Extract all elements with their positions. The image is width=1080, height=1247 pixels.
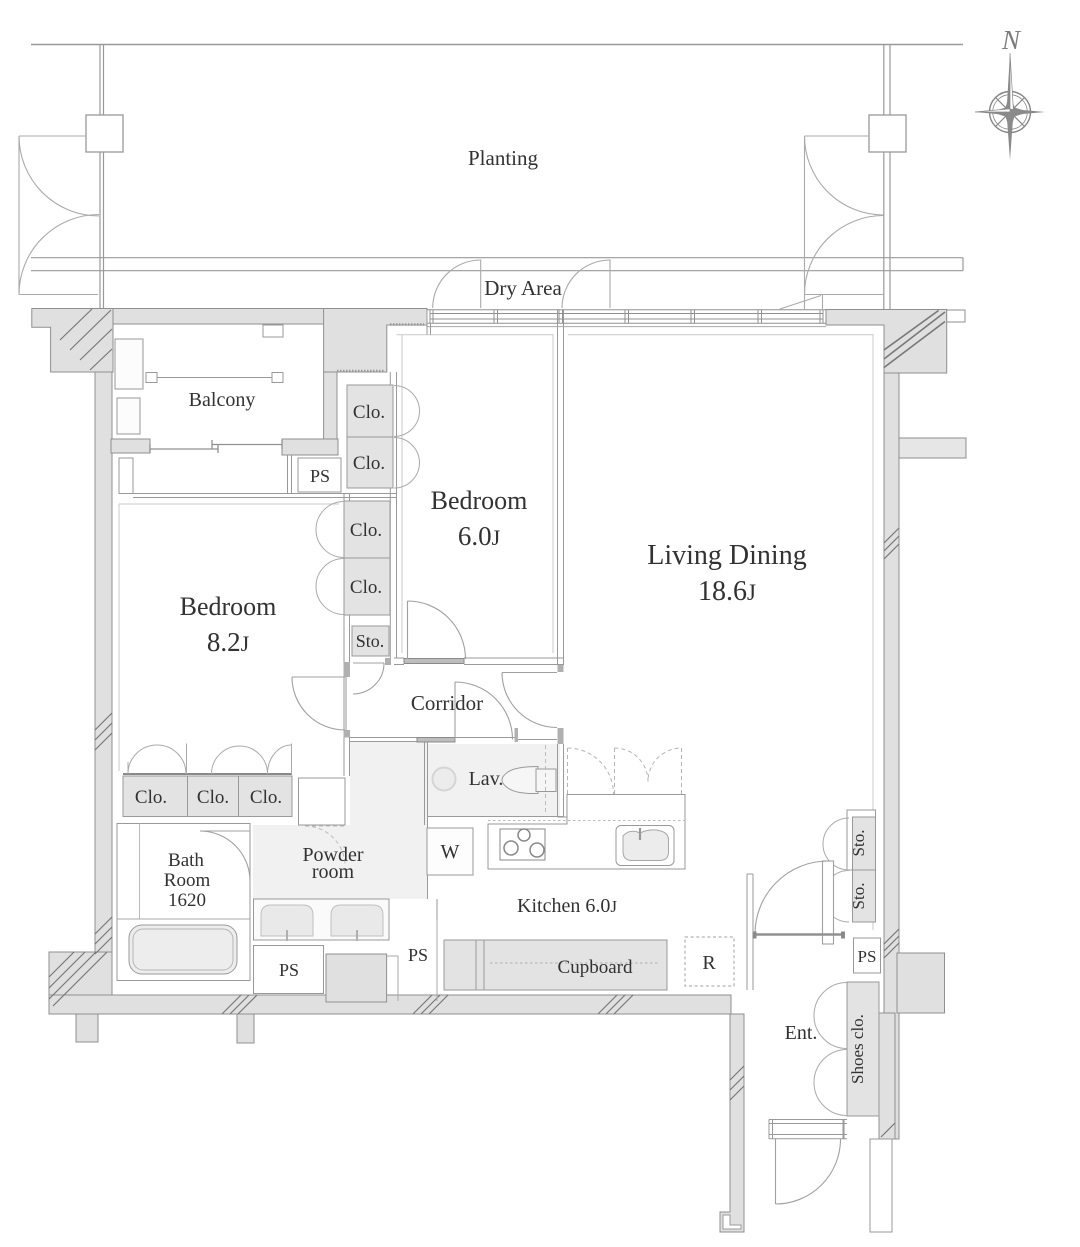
svg-text:6.0J: 6.0J [458,521,501,551]
svg-text:Balcony: Balcony [189,389,256,411]
svg-text:Clo.: Clo. [250,787,282,808]
svg-text:W: W [441,841,460,863]
svg-text:Kitchen 6.0J: Kitchen 6.0J [517,895,617,917]
svg-text:Dry Area: Dry Area [484,276,562,300]
svg-text:Room: Room [164,870,211,891]
svg-text:Bedroom: Bedroom [180,592,277,621]
svg-text:room: room [312,861,355,883]
svg-text:18.6J: 18.6J [698,576,756,607]
svg-text:Shoes clo.: Shoes clo. [848,1014,867,1084]
svg-text:Sto.: Sto. [849,883,868,910]
svg-text:Clo.: Clo. [353,453,385,474]
svg-text:Corridor: Corridor [411,691,483,715]
svg-text:8.2J: 8.2J [207,627,250,657]
svg-text:Bath: Bath [168,850,204,871]
svg-text:Sto.: Sto. [356,631,385,651]
svg-text:Planting: Planting [468,146,539,170]
svg-text:PS: PS [279,960,299,980]
svg-text:R: R [702,952,716,974]
svg-text:Clo.: Clo. [350,577,382,598]
svg-text:Ent.: Ent. [785,1022,818,1044]
svg-text:Bedroom: Bedroom [431,486,528,515]
svg-text:Cupboard: Cupboard [558,957,633,978]
svg-text:Clo.: Clo. [350,520,382,541]
svg-text:Lav.: Lav. [469,768,504,790]
svg-text:PS: PS [408,945,428,965]
svg-text:Sto.: Sto. [849,830,868,857]
svg-text:PS: PS [858,947,877,966]
svg-text:1620: 1620 [168,890,206,911]
svg-text:Clo.: Clo. [353,402,385,423]
svg-text:PS: PS [310,466,330,486]
svg-text:Living Dining: Living Dining [647,540,806,571]
svg-text:Clo.: Clo. [135,787,167,808]
svg-text:Clo.: Clo. [197,787,229,808]
svg-text:N: N [1001,25,1022,55]
